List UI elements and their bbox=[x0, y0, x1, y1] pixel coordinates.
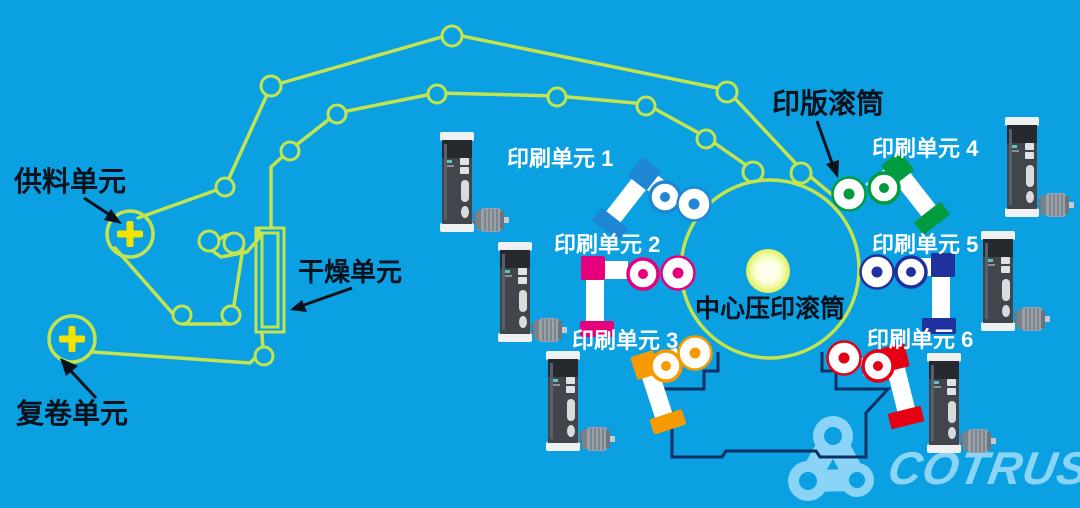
idler-roller bbox=[216, 178, 234, 196]
print-unit-5-label: 印刷单元 5 bbox=[872, 232, 978, 257]
idler-roller bbox=[697, 130, 715, 148]
drum-center-shaft bbox=[746, 249, 790, 293]
print-unit-1-label: 印刷单元 1 bbox=[507, 146, 613, 171]
flexo-press-diagram: COTRUST 中心压印滚筒 bbox=[0, 0, 1080, 508]
rewind-unit-label: 复卷单元 bbox=[16, 398, 128, 429]
idler-roller bbox=[222, 306, 240, 324]
central-cylinder-label: 中心压印滚筒 bbox=[695, 294, 845, 323]
print-unit-6-label: 印刷单元 6 bbox=[867, 327, 973, 352]
idler-roller bbox=[199, 231, 219, 251]
idler-roller bbox=[637, 97, 655, 115]
idler-roller bbox=[717, 82, 737, 102]
idler-roller bbox=[173, 306, 191, 324]
idler-roller bbox=[281, 142, 299, 160]
idler-roller bbox=[328, 105, 346, 123]
idler-roller bbox=[255, 347, 273, 365]
idler-roller bbox=[224, 233, 244, 253]
idler-roller bbox=[442, 26, 462, 46]
plate-cylinder-label: 印版滚筒 bbox=[772, 87, 884, 119]
print-unit-4-label: 印刷单元 4 bbox=[872, 136, 979, 161]
idler-roller bbox=[261, 76, 281, 96]
idler-roller bbox=[548, 88, 566, 106]
feed-unit-label: 供料单元 bbox=[13, 166, 126, 197]
print-unit-2-label: 印刷单元 2 bbox=[554, 232, 660, 257]
idler-roller bbox=[428, 85, 446, 103]
print-unit-3-label: 印刷单元 3 bbox=[572, 328, 678, 353]
drying-unit-label: 干燥单元 bbox=[298, 257, 402, 287]
idler-roller bbox=[791, 163, 811, 183]
